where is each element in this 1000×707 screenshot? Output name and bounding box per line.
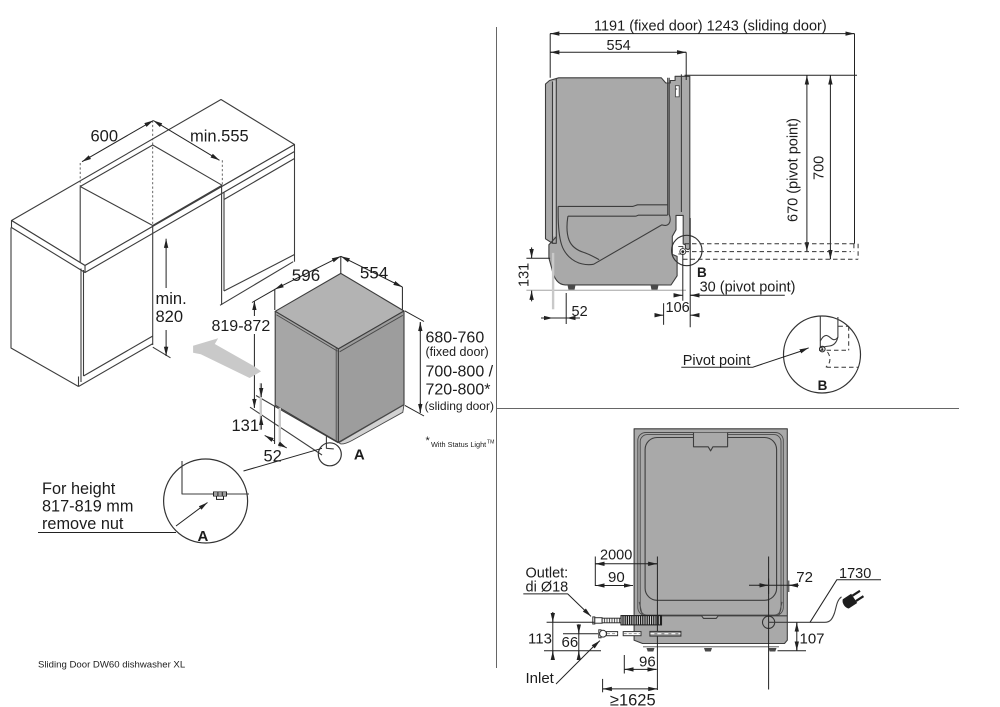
svg-text:remove nut: remove nut	[42, 515, 124, 533]
svg-text:96: 96	[639, 653, 656, 670]
svg-text:817-819 mm: 817-819 mm	[42, 498, 133, 516]
svg-text:113: 113	[528, 630, 552, 647]
svg-text:TM: TM	[487, 440, 495, 446]
svg-text:700-800 /: 700-800 /	[426, 364, 494, 381]
svg-text:Inlet: Inlet	[526, 670, 555, 687]
svg-text:(fixed door): (fixed door)	[426, 345, 489, 359]
svg-text:819-872: 819-872	[212, 318, 271, 335]
svg-text:*: *	[426, 435, 431, 447]
svg-text:B: B	[697, 265, 707, 280]
svg-text:106: 106	[666, 300, 690, 316]
svg-text:1191 (fixed door) 1243 (slidin: 1191 (fixed door) 1243 (sliding door)	[594, 18, 827, 34]
svg-text:di Ø18: di Ø18	[526, 579, 569, 595]
svg-text:B: B	[818, 378, 828, 393]
svg-text:600: 600	[91, 128, 119, 146]
svg-text:670 (pivot point): 670 (pivot point)	[786, 118, 802, 222]
svg-text:30 (pivot point): 30 (pivot point)	[700, 280, 796, 296]
svg-text:700: 700	[812, 156, 828, 180]
svg-text:66: 66	[562, 634, 579, 651]
svg-text:≥1625: ≥1625	[610, 691, 656, 707]
svg-text:554: 554	[360, 264, 388, 283]
svg-text:596: 596	[292, 266, 320, 285]
svg-text:72: 72	[796, 569, 813, 586]
svg-text:2000: 2000	[600, 548, 632, 564]
svg-text:131: 131	[232, 417, 260, 435]
svg-text:A: A	[198, 528, 209, 545]
svg-text:820: 820	[156, 308, 184, 326]
svg-text:Sliding Door DW60 dishwasher X: Sliding Door DW60 dishwasher XL	[38, 660, 186, 671]
svg-text:min.: min.	[156, 290, 187, 308]
svg-text:Pivot point: Pivot point	[683, 353, 751, 369]
svg-text:52: 52	[572, 304, 588, 320]
svg-text:90: 90	[608, 569, 625, 586]
svg-text:(sliding door): (sliding door)	[425, 399, 494, 413]
svg-text:A: A	[354, 447, 365, 464]
svg-text:For height: For height	[42, 480, 116, 498]
svg-text:With Status Light: With Status Light	[431, 440, 486, 449]
svg-text:min.555: min.555	[190, 128, 249, 146]
svg-text:131: 131	[517, 263, 533, 287]
svg-text:720-800*: 720-800*	[426, 382, 491, 399]
svg-text:680-760: 680-760	[426, 330, 485, 347]
svg-text:107: 107	[800, 631, 825, 648]
svg-text:554: 554	[607, 38, 631, 54]
